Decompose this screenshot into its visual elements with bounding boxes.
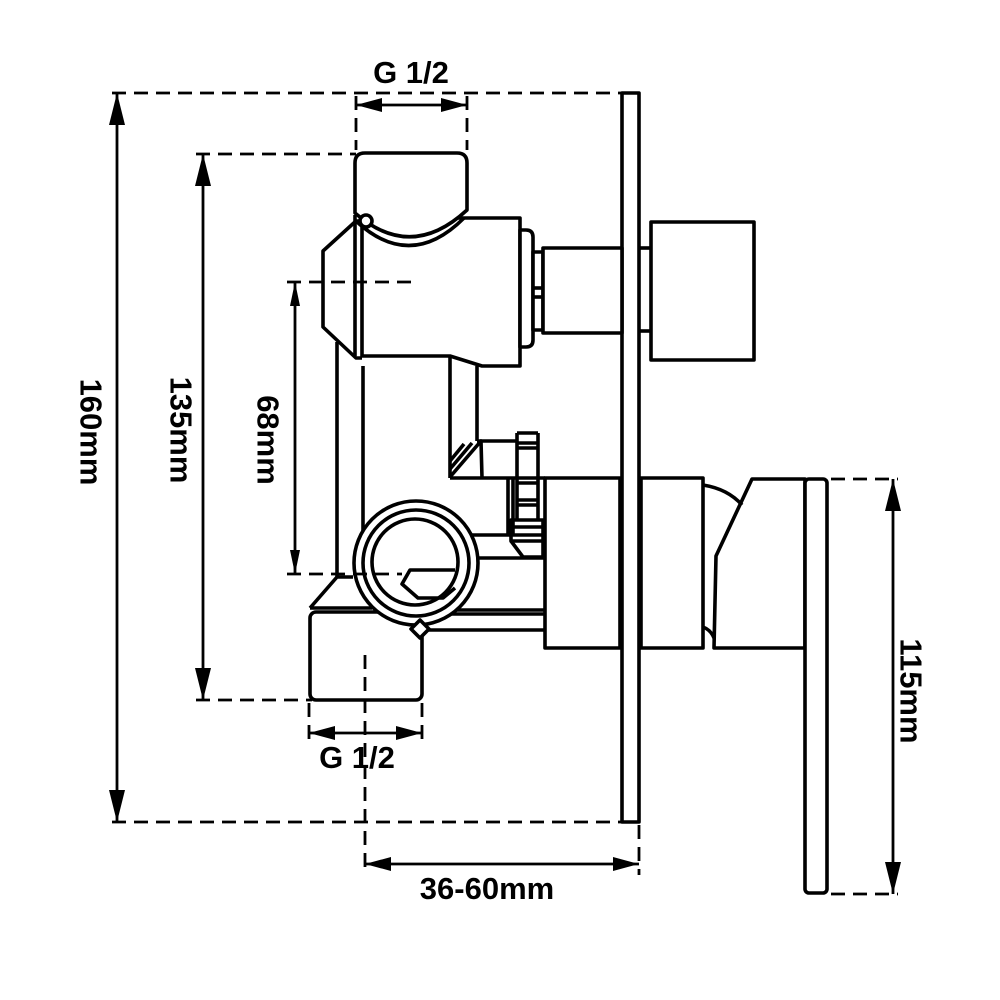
label-wall-depth: 36-60mm	[420, 871, 554, 906]
arrow-up-icon	[109, 93, 125, 125]
arrow-down-icon	[885, 862, 901, 894]
pipe-cut-edge	[450, 441, 482, 478]
label-port-offset: 68mm	[251, 395, 286, 485]
technical-drawing-page: G 1/2 160mm 135mm 68mm G 1/2 36-60mm 115…	[0, 0, 1000, 1000]
body-detail-hole	[360, 215, 372, 227]
handle-escutcheon	[641, 478, 703, 648]
arrow-left-icon	[365, 857, 391, 871]
lower-valve-body	[545, 478, 620, 648]
arrow-right-icon	[396, 726, 422, 740]
stem-shaft	[543, 248, 622, 333]
handle-lever	[805, 479, 827, 893]
label-thread-bottom: G 1/2	[319, 740, 395, 775]
arrow-down-icon	[195, 668, 211, 700]
arrow-left-icon	[356, 98, 382, 112]
wall-plate	[622, 93, 639, 822]
label-height-body: 135mm	[164, 377, 199, 484]
label-height-overall: 160mm	[74, 379, 109, 486]
upper-knob	[651, 222, 754, 360]
arrow-right-icon	[613, 857, 639, 871]
arrow-right-icon	[441, 98, 467, 112]
arrow-up-icon	[195, 154, 211, 186]
arrow-up-icon	[290, 282, 300, 306]
arrow-up-icon	[885, 479, 901, 511]
threaded-stem	[511, 433, 543, 557]
label-handle-drop: 115mm	[894, 638, 929, 743]
handle-neck-arc	[703, 485, 742, 505]
arrow-left-icon	[309, 726, 335, 740]
outlet-nut-slant	[310, 577, 353, 608]
stem-ring	[520, 230, 533, 347]
arrow-down-icon	[109, 790, 125, 822]
label-thread-top: G 1/2	[373, 55, 449, 90]
mixer-valve-drawing: G 1/2 160mm 135mm 68mm G 1/2 36-60mm 115…	[0, 0, 1000, 1000]
arrow-down-icon	[290, 550, 300, 574]
handle-neck	[714, 479, 805, 648]
